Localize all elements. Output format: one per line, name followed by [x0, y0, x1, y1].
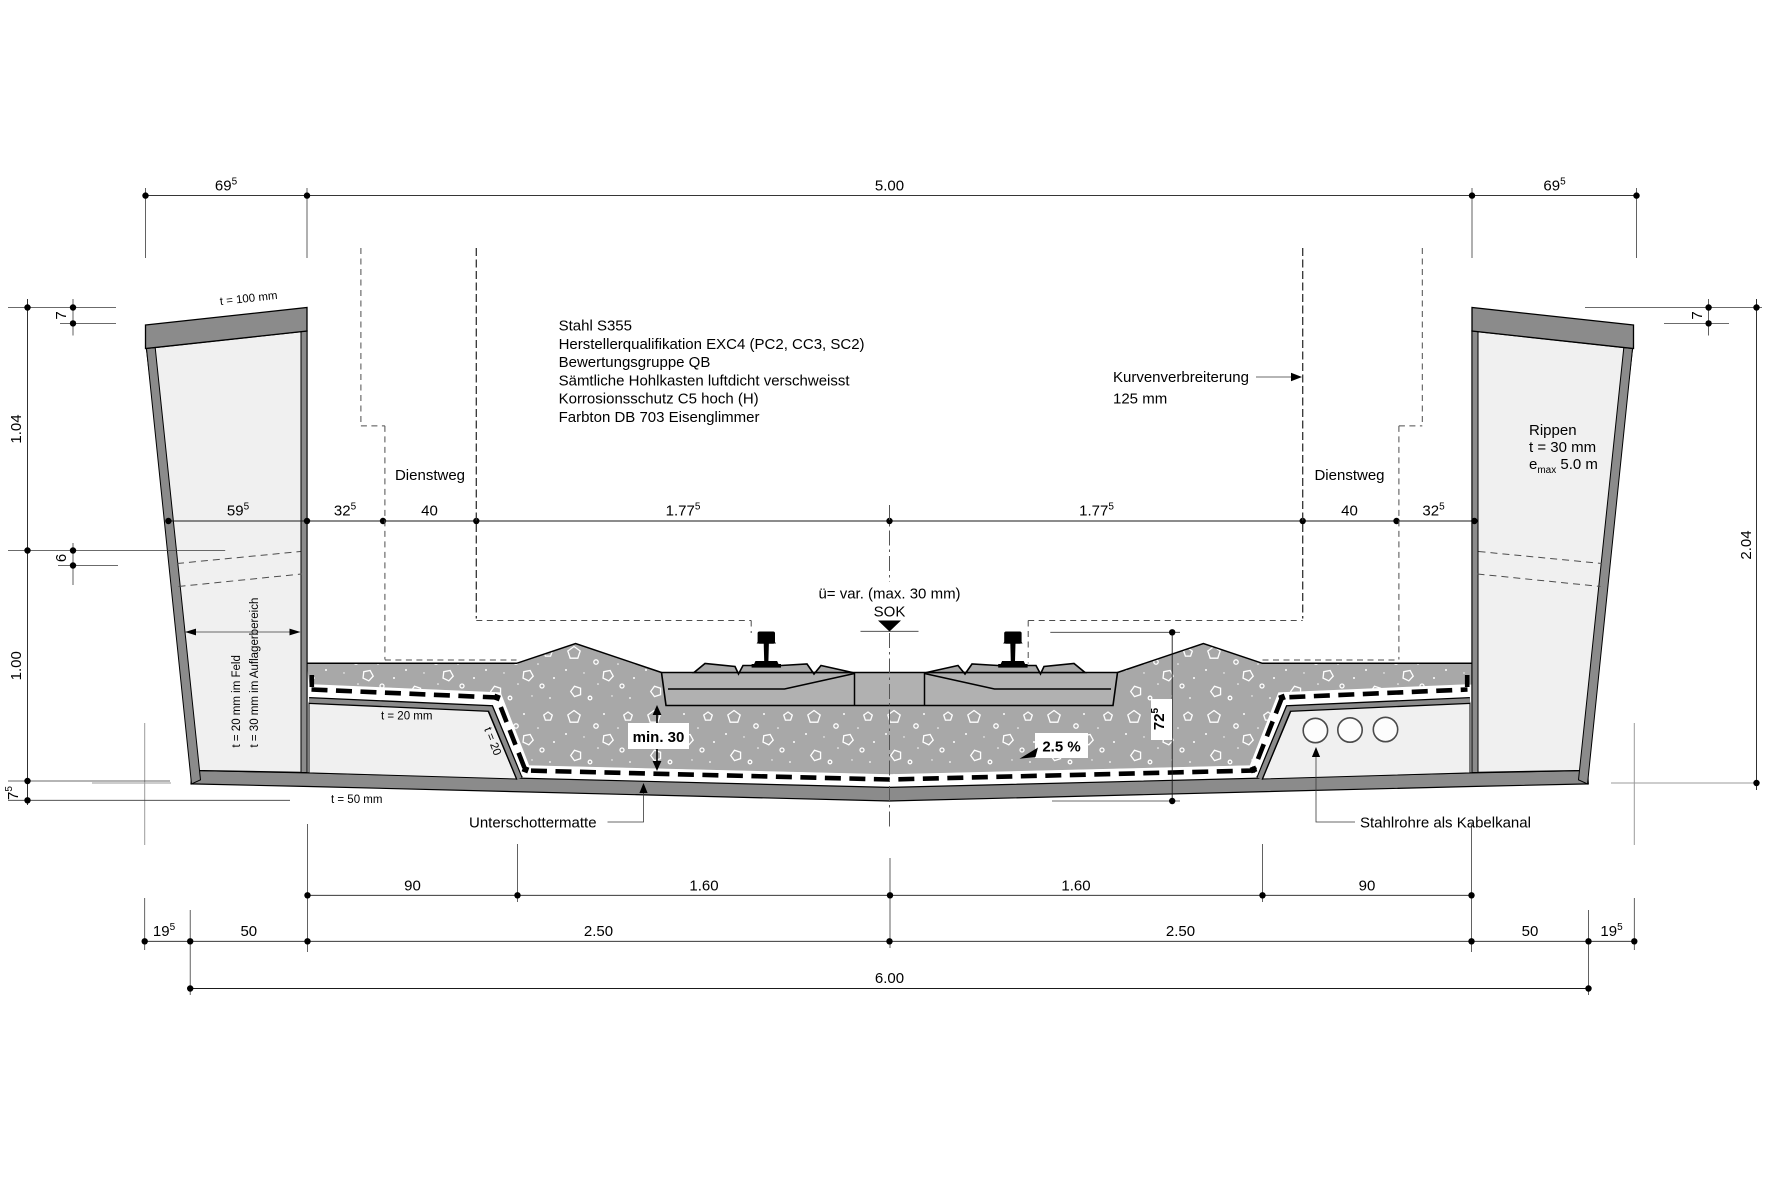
svg-text:125 mm: 125 mm — [1113, 391, 1167, 408]
svg-text:ü= var. (max. 30 mm): ü= var. (max. 30 mm) — [818, 586, 960, 603]
svg-text:Kurvenverbreiterung: Kurvenverbreiterung — [1113, 369, 1249, 386]
svg-text:Unterschottermatte: Unterschottermatte — [469, 815, 597, 832]
svg-text:Dienstweg: Dienstweg — [395, 467, 465, 484]
svg-text:Korrosionsschutz C5 hoch (H): Korrosionsschutz C5 hoch (H) — [559, 391, 759, 408]
svg-text:Farbton DB 703 Eisenglimmer: Farbton DB 703 Eisenglimmer — [559, 409, 760, 426]
svg-text:Herstellerqualifikation EXC4 (: Herstellerqualifikation EXC4 (PC2, CC3, … — [559, 336, 865, 353]
svg-text:6: 6 — [53, 554, 70, 562]
svg-text:7: 7 — [53, 311, 70, 319]
svg-text:90: 90 — [1359, 877, 1376, 894]
svg-text:1.60: 1.60 — [689, 877, 718, 894]
svg-text:Dienstweg: Dienstweg — [1314, 467, 1384, 484]
svg-text:Bewertungsgruppe QB: Bewertungsgruppe QB — [559, 354, 711, 371]
svg-text:5.00: 5.00 — [875, 178, 904, 195]
svg-text:t = 30 mm: t = 30 mm — [1529, 439, 1596, 456]
svg-text:min. 30: min. 30 — [633, 729, 685, 746]
svg-text:Stahl S355: Stahl S355 — [559, 318, 632, 335]
svg-text:2.50: 2.50 — [584, 923, 613, 940]
svg-text:2.04: 2.04 — [1738, 530, 1755, 559]
svg-text:1.60: 1.60 — [1061, 877, 1090, 894]
svg-text:Rippen: Rippen — [1529, 422, 1577, 439]
svg-text:t = 20 mm: t = 20 mm — [381, 711, 432, 723]
svg-text:7: 7 — [1689, 311, 1706, 319]
svg-text:Sämtliche Hohlkasten luftdicht: Sämtliche Hohlkasten luftdicht verschwei… — [559, 372, 851, 389]
svg-text:40: 40 — [421, 503, 438, 520]
svg-text:40: 40 — [1341, 503, 1358, 520]
svg-text:Stahlrohre als Kabelkanal: Stahlrohre als Kabelkanal — [1360, 815, 1531, 832]
svg-text:SOK: SOK — [874, 604, 906, 621]
svg-text:1.04: 1.04 — [8, 414, 25, 443]
svg-text:2.50: 2.50 — [1166, 923, 1195, 940]
svg-text:6.00: 6.00 — [875, 970, 904, 987]
svg-text:t = 50 mm: t = 50 mm — [331, 794, 382, 806]
svg-text:1.00: 1.00 — [8, 651, 25, 680]
svg-text:t = 30 mm im Auflagerbereich: t = 30 mm im Auflagerbereich — [249, 598, 261, 748]
svg-text:2.5 %: 2.5 % — [1042, 739, 1080, 756]
svg-text:90: 90 — [404, 877, 421, 894]
svg-text:50: 50 — [1522, 923, 1539, 940]
svg-text:50: 50 — [240, 923, 257, 940]
svg-text:t = 20 mm im Feld: t = 20 mm im Feld — [231, 655, 243, 747]
